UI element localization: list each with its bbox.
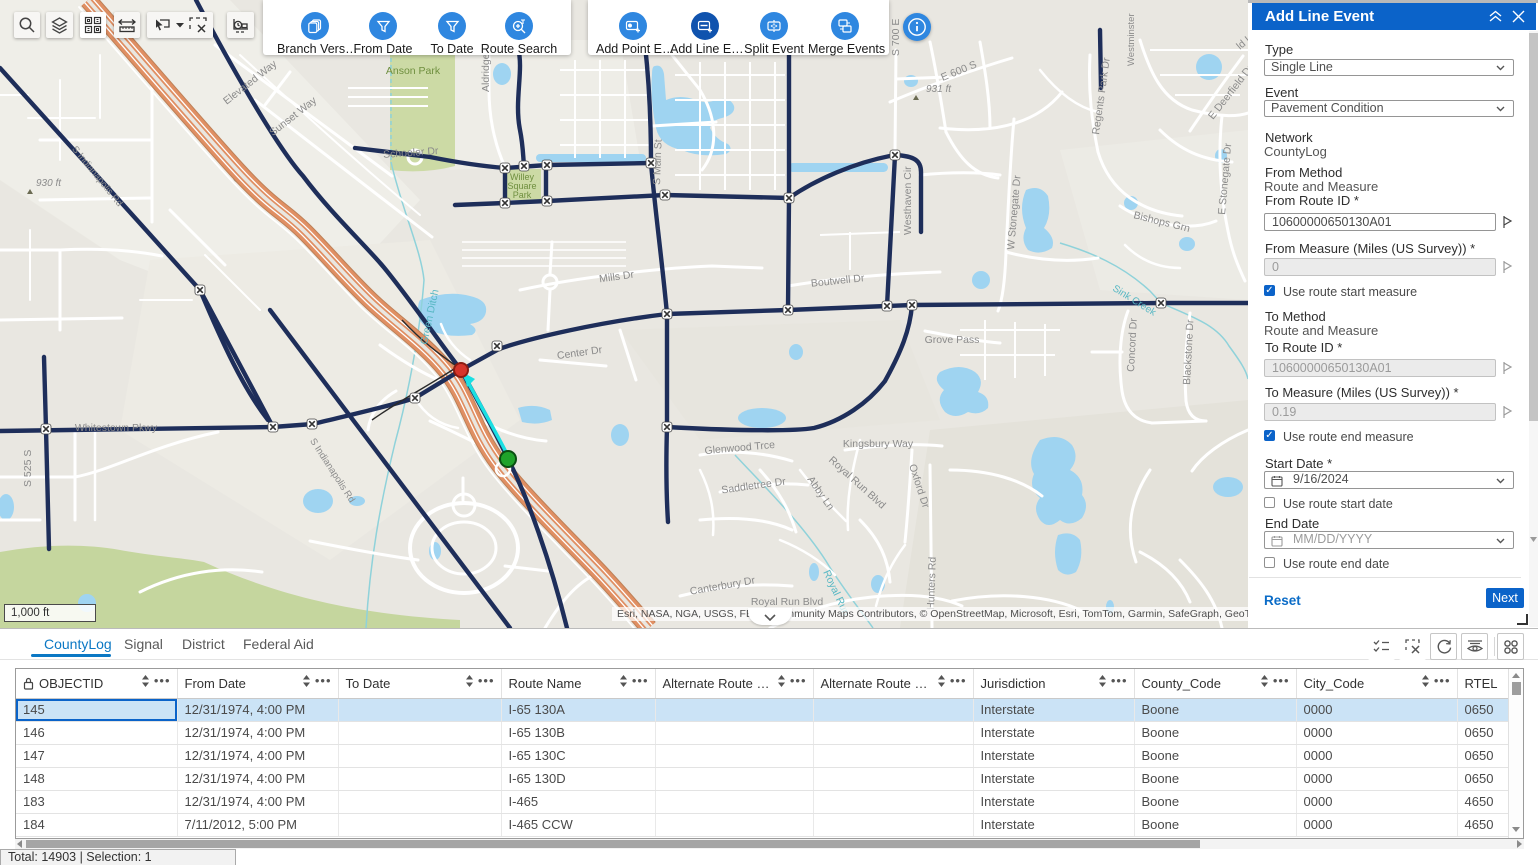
svg-text:Hunters Rd: Hunters Rd <box>925 556 939 610</box>
svg-text:S 700 E: S 700 E <box>890 19 902 56</box>
svg-text:S Main St: S Main St <box>651 139 665 185</box>
svg-text:931 ft: 931 ft <box>926 84 952 95</box>
svg-text:Grove Pass: Grove Pass <box>925 334 980 346</box>
svg-text:S 525 S: S 525 S <box>22 450 34 487</box>
svg-text:Westminster: Westminster <box>1126 13 1137 66</box>
svg-text:Anson Park: Anson Park <box>386 65 441 77</box>
svg-text:Park: Park <box>513 190 532 200</box>
svg-text:Whitestown Pkwy: Whitestown Pkwy <box>75 422 158 434</box>
svg-text:Kingsbury Way: Kingsbury Way <box>843 438 914 450</box>
svg-text:Westhaven Cir: Westhaven Cir <box>902 166 914 235</box>
svg-text:930 ft: 930 ft <box>36 178 62 189</box>
